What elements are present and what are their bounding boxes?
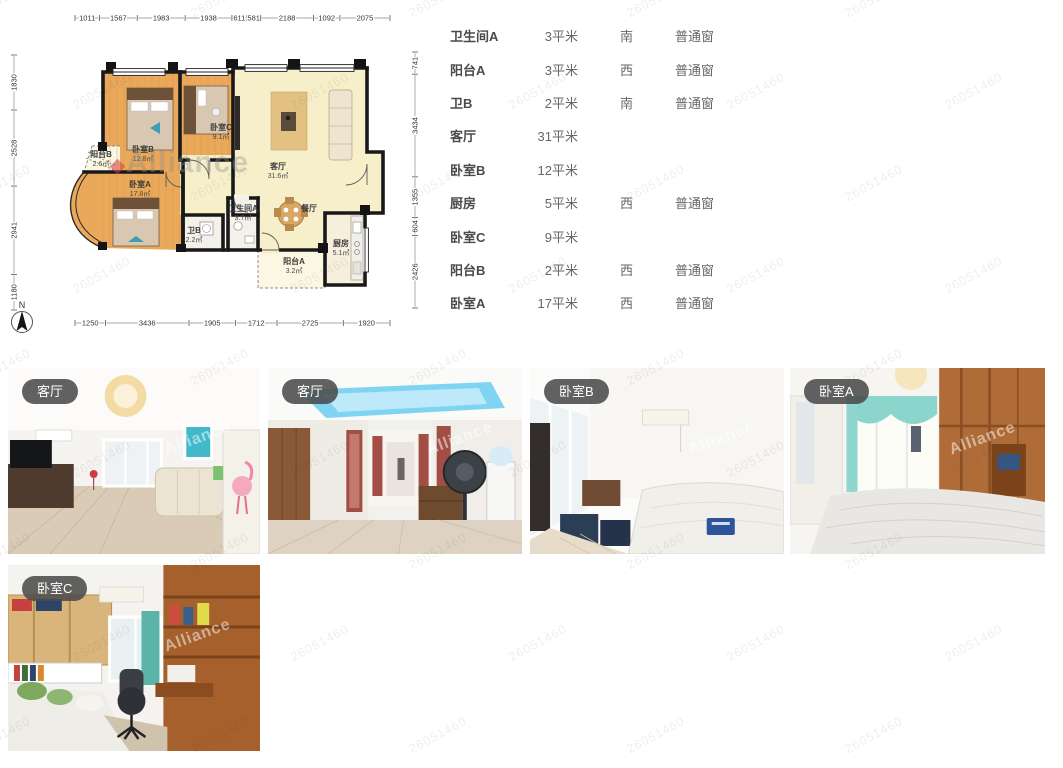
photo-bedroom-a[interactable]: 卧室A Alliance: [790, 368, 1045, 554]
floorplan-room-label: 阳台A: [283, 256, 305, 266]
room-window-cell: 普通窗: [675, 293, 760, 312]
id-watermark: 26051460: [842, 0, 905, 20]
room-name-cell: 阳台A: [450, 60, 537, 79]
dimension-label: 741: [411, 57, 420, 70]
floorplan-room-area: 2.2㎡: [186, 236, 203, 244]
room-orientation-cell: 南: [620, 26, 675, 45]
floorplan-room-area: 3.7㎡: [235, 214, 252, 222]
dimension-label: 1567: [110, 14, 127, 23]
dimension-label: 1938: [200, 14, 217, 23]
id-watermark: 26051460: [942, 254, 1005, 296]
photo-living-room-2[interactable]: 客厅 Alliance: [268, 368, 522, 554]
photo-label: 客厅: [22, 379, 78, 404]
table-row: 卧室B12平米: [450, 153, 760, 186]
dimension-label: 2188: [279, 14, 296, 23]
room-name-cell: 卫生间A: [450, 26, 537, 45]
dimension-label: 2426: [411, 263, 420, 280]
dimension-label: 604: [411, 220, 420, 233]
floorplan-room-label: 阳台B: [90, 149, 112, 159]
id-watermark: 26051460: [842, 714, 905, 756]
photo-label: 客厅: [282, 379, 338, 404]
dimension-label: 2725: [302, 319, 319, 328]
alliance-logo-icon: [110, 159, 126, 175]
room-size-cell: 3平米: [537, 26, 620, 45]
floorplan-room-label: 卫生间A: [228, 203, 258, 213]
dimension-label: 1011: [79, 14, 95, 23]
room-orientation-cell: 南: [620, 93, 675, 112]
photo-label: 卧室C: [22, 576, 87, 601]
room-size-cell: 17平米: [537, 293, 620, 312]
room-orientation-cell: 西: [620, 193, 675, 212]
north-label: N: [19, 300, 26, 310]
room-name-cell: 厨房: [450, 193, 537, 212]
dimension-label: 1092: [318, 14, 335, 23]
table-row: 客厅31平米: [450, 119, 760, 152]
dimension-label: 1905: [204, 319, 221, 328]
id-watermark: 26051460: [942, 622, 1005, 664]
room-size-cell: 2平米: [537, 93, 620, 112]
table-row: 阳台A3平米西普通窗: [450, 52, 760, 85]
floorplan-room-area: 31.6㎡: [268, 172, 289, 180]
floorplan-room-area: 3.2㎡: [286, 267, 303, 275]
floorplan-room-label: 厨房: [333, 238, 349, 248]
room-size-cell: 12平米: [537, 160, 620, 179]
id-watermark: 26051460: [842, 162, 905, 204]
room-window-cell: 普通窗: [675, 93, 760, 112]
room-name-cell: 客厅: [450, 126, 537, 145]
id-watermark: 26051460: [406, 714, 469, 756]
dimension-label: 2075: [357, 14, 374, 23]
table-row: 卫生间A3平米南普通窗: [450, 19, 760, 52]
room-size-cell: 3平米: [537, 60, 620, 79]
id-watermark: 26051460: [624, 714, 687, 756]
floorplan-room-label: 餐厅: [300, 203, 317, 213]
room-orientation-cell: 西: [620, 260, 675, 279]
room-name-cell: 卧室C: [450, 227, 537, 246]
page: { "page": { "watermark_id": "26051460", …: [0, 0, 1063, 768]
room-size-cell: 31平米: [537, 126, 620, 145]
dimension-label: 1355: [411, 189, 420, 206]
dimension-label: 1180: [10, 284, 19, 300]
dimension-label: 1830: [10, 74, 19, 91]
photo-label: 卧室A: [804, 379, 869, 404]
table-row: 阳台B2平米西普通窗: [450, 253, 760, 286]
id-watermark: 26051460: [724, 622, 787, 664]
id-watermark: 26051460: [506, 622, 569, 664]
room-name-cell: 卫B: [450, 93, 537, 112]
table-row: 卧室A17平米西普通窗: [450, 286, 760, 319]
floorplan-room-area: 2.6㎡: [93, 160, 110, 168]
photo-bedroom-c[interactable]: 卧室C Alliance: [8, 565, 260, 751]
id-watermark: 26051460: [288, 622, 351, 664]
room-window-cell: 普通窗: [675, 260, 760, 279]
room-name-cell: 卧室A: [450, 293, 537, 312]
room-size-cell: 2平米: [537, 260, 620, 279]
floorplan-room-area: 17.8㎡: [130, 190, 151, 198]
dimension-label: 2941: [10, 222, 19, 239]
dimension-label: 2528: [10, 140, 19, 157]
dimension-label: 1712: [248, 319, 265, 328]
table-row: 卧室C9平米: [450, 219, 760, 252]
id-watermark: 26051460: [624, 0, 687, 20]
photo-bedroom-b[interactable]: 卧室B Alliance: [530, 368, 784, 554]
room-orientation-cell: 西: [620, 293, 675, 312]
photo-label: 卧室B: [544, 379, 609, 404]
floorplan-room-label: 卧室C: [210, 122, 232, 132]
table-row: 厨房5平米西普通窗: [450, 186, 760, 219]
floorplan-room-label: 卫B: [187, 226, 201, 235]
room-name-cell: 卧室B: [450, 160, 537, 179]
photo-living-room-1[interactable]: 客厅 Alliance: [8, 368, 260, 554]
north-arrow: N: [12, 300, 33, 333]
dimension-label: 581: [247, 14, 260, 23]
floorplan-room-label: 卧室A: [129, 179, 151, 189]
floorplan-image[interactable]: 1011156719831938611581218810922075125034…: [0, 0, 440, 355]
room-size-cell: 5平米: [537, 193, 620, 212]
room-orientation-cell: 西: [620, 60, 675, 79]
floorplan-room-area: 5.1㎡: [333, 249, 350, 257]
table-row: 卫B2平米南普通窗: [450, 86, 760, 119]
id-watermark: 26051460: [942, 70, 1005, 112]
room-window-cell: 普通窗: [675, 26, 760, 45]
dimension-label: 1983: [153, 14, 170, 23]
room-info-table: 卫生间A3平米南普通窗阳台A3平米西普通窗卫B2平米南普通窗客厅31平米卧室B1…: [450, 19, 760, 320]
dimension-label: 1250: [82, 319, 99, 328]
dimension-label: 611: [233, 14, 245, 23]
floorplan-room-label: 客厅: [269, 161, 286, 171]
room-size-cell: 9平米: [537, 227, 620, 246]
dimension-label: 1920: [358, 319, 375, 328]
alliance-watermark: Alliance: [112, 146, 249, 180]
room-window-cell: 普通窗: [675, 60, 760, 79]
floorplan-room-area: 9.1㎡: [213, 133, 230, 141]
dimension-label: 3436: [139, 319, 156, 328]
room-name-cell: 阳台B: [450, 260, 537, 279]
dimension-label: 3434: [411, 117, 420, 134]
room-window-cell: 普通窗: [675, 193, 760, 212]
